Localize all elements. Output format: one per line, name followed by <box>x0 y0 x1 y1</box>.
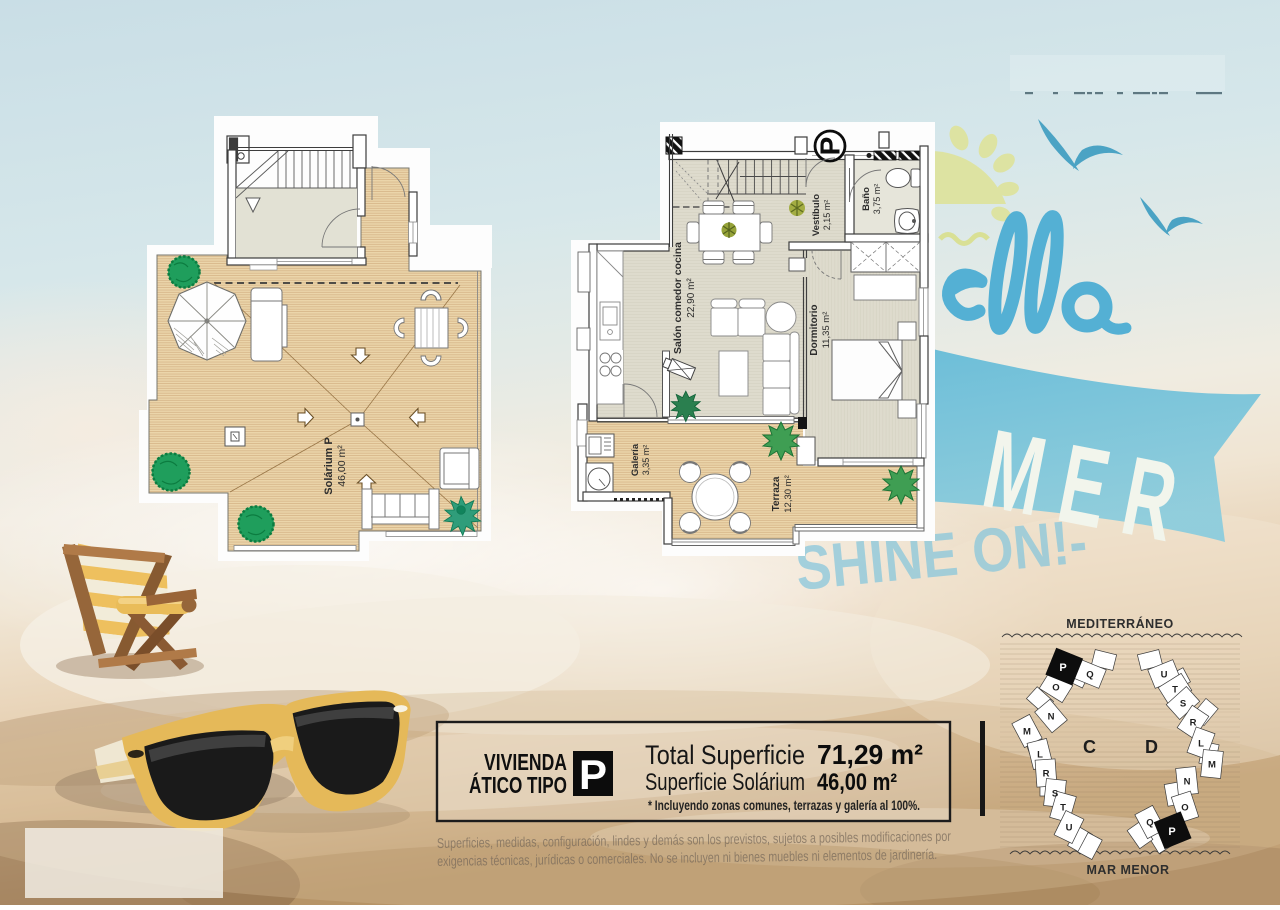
svg-text:Baño: Baño <box>861 187 872 211</box>
svg-text:Q: Q <box>1146 818 1153 829</box>
svg-text:MAR MENOR: MAR MENOR <box>1087 863 1170 877</box>
svg-text:L: L <box>1198 739 1204 750</box>
svg-text:3,35 m²: 3,35 m² <box>641 445 651 476</box>
svg-text:MEDITERRÁNEO: MEDITERRÁNEO <box>1066 616 1173 631</box>
svg-text:P: P <box>815 137 846 156</box>
svg-text:P: P <box>1059 662 1066 674</box>
svg-text:M: M <box>1023 727 1031 738</box>
svg-text:* Incluyendo zonas comunes, te: * Incluyendo zonas comunes, terrazas y g… <box>648 797 920 813</box>
svg-text:O: O <box>1052 683 1059 694</box>
svg-text:T: T <box>1060 803 1066 814</box>
svg-text:22,90 m²: 22,90 m² <box>686 278 697 318</box>
svg-text:Total Superficie: Total Superficie <box>645 740 805 770</box>
svg-text:Q: Q <box>1086 670 1093 681</box>
svg-text:U: U <box>1161 670 1168 681</box>
svg-text:P: P <box>1168 826 1175 838</box>
svg-text:R: R <box>1190 718 1197 729</box>
svg-text:M: M <box>1208 760 1216 771</box>
svg-text:N: N <box>1048 712 1055 723</box>
svg-text:U: U <box>1066 823 1073 834</box>
svg-text:Galería: Galería <box>630 443 641 476</box>
svg-text:C: C <box>1083 737 1096 757</box>
svg-text:Terraza: Terraza <box>771 476 782 511</box>
svg-text:2,15 m²: 2,15 m² <box>822 200 832 231</box>
svg-text:N: N <box>1184 777 1191 788</box>
svg-text:R: R <box>1043 769 1050 780</box>
svg-text:T: T <box>1172 685 1178 696</box>
svg-text:ÁTICO TIPO: ÁTICO TIPO <box>469 771 567 798</box>
svg-text:L: L <box>1037 750 1043 761</box>
svg-text:Vestíbulo: Vestíbulo <box>811 194 822 236</box>
svg-text:71,29 m²: 71,29 m² <box>817 739 923 770</box>
svg-text:Dormitorio: Dormitorio <box>809 304 820 355</box>
svg-text:46,00 m²: 46,00 m² <box>336 445 348 487</box>
svg-text:11,35 m²: 11,35 m² <box>821 312 832 349</box>
svg-text:S: S <box>1180 699 1186 710</box>
svg-text:Solárium P: Solárium P <box>323 437 335 494</box>
svg-text:12,30 m²: 12,30 m² <box>783 475 794 513</box>
svg-text:Salón comedor cocina: Salón comedor cocina <box>672 242 684 354</box>
svg-text:Superficie Solárium: Superficie Solárium <box>645 769 805 796</box>
svg-text:O: O <box>1181 803 1188 814</box>
svg-text:3,75 m²: 3,75 m² <box>872 184 882 215</box>
svg-text:P: P <box>579 751 607 798</box>
svg-text:S: S <box>1052 789 1058 800</box>
svg-text:46,00 m²: 46,00 m² <box>817 769 897 796</box>
svg-text:D: D <box>1145 737 1158 757</box>
